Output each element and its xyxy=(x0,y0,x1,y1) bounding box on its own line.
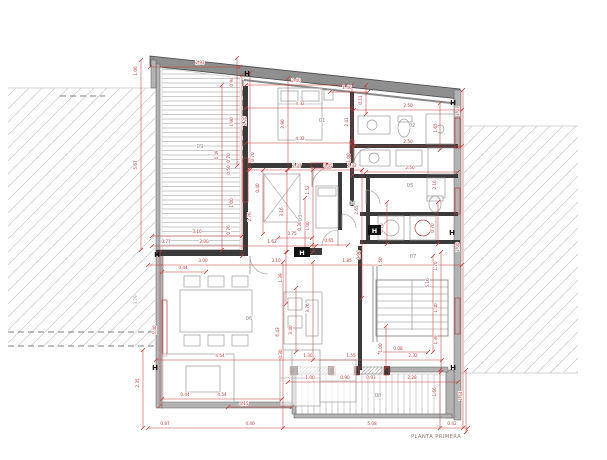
furniture-item xyxy=(208,335,224,346)
wall-glazed xyxy=(446,370,454,418)
dimension-label: 0.76 xyxy=(226,225,231,235)
wall xyxy=(360,212,458,216)
section-marker: H xyxy=(154,251,160,259)
dimension-label: 0.50 xyxy=(226,165,231,175)
wall-glazed xyxy=(156,64,160,252)
dimension-label: 4.54 xyxy=(217,392,227,397)
dimension-label: 5.08 xyxy=(367,421,377,426)
dimension-label: 1.90 xyxy=(229,117,234,127)
dimension-label: 0.70 xyxy=(226,153,231,163)
furniture-item xyxy=(180,290,252,332)
dimension-label: 0.77 xyxy=(161,239,171,244)
dimension-label: 1.00 xyxy=(455,242,460,252)
dimension-label: 2.93 xyxy=(195,60,205,65)
room-label: 03 xyxy=(298,215,304,222)
dimension-label: 2.50 xyxy=(403,139,413,144)
wall xyxy=(360,240,460,244)
wall-glazed xyxy=(151,60,156,88)
dimension-label: 4.15 xyxy=(239,401,249,406)
dimension-label: 2.28 xyxy=(407,375,417,380)
dimension-label: 0.70 xyxy=(250,152,255,162)
dimension-label: 1.39 xyxy=(433,335,438,345)
dimension-label: 3.79 xyxy=(133,295,138,305)
furniture-item xyxy=(324,90,333,100)
dimension-label: 1.55 xyxy=(346,353,356,358)
section-marker-letter: H xyxy=(372,227,377,235)
dimension-label: 1.30 xyxy=(303,353,313,358)
dimension-label: 1.00 xyxy=(346,153,351,163)
dimension-label: 1.00 xyxy=(229,198,234,208)
dimension-label: 3.16 xyxy=(279,207,284,217)
furniture-item xyxy=(208,276,224,287)
section-marker: H xyxy=(244,70,250,78)
dimension-label: 5.67 xyxy=(133,160,138,170)
furniture-item xyxy=(186,366,220,392)
door-arc xyxy=(342,214,356,228)
dimension-label: 4.40 xyxy=(245,421,255,426)
dimension-label: 3.10 xyxy=(192,229,202,234)
dimension-label: 2.37 xyxy=(292,163,302,168)
dimension-label: 2.00 xyxy=(199,239,209,244)
dimension-label: 2.90 xyxy=(280,119,285,129)
dimension-label: 1.70 xyxy=(433,261,438,271)
dimension-label: 0.65 xyxy=(324,238,334,243)
furniture-item xyxy=(232,276,248,287)
section-marker: H xyxy=(450,99,456,107)
dimension-label: 1.40 xyxy=(433,303,438,313)
dimension-label: 0.70 xyxy=(430,223,435,233)
dimension-label: 1.64 xyxy=(458,391,463,401)
dimension-label: 0.90 xyxy=(356,250,361,260)
room-label: 06 xyxy=(246,316,253,322)
dimension-label: 3.40 xyxy=(288,325,293,335)
dimension-label: 3.00 xyxy=(198,258,208,263)
furniture-item xyxy=(358,116,390,134)
room-label: 07 xyxy=(410,254,417,260)
dimension-label: 1.65 xyxy=(433,123,438,133)
dimension-label: 0.44 xyxy=(180,392,190,397)
drawing-title: PLANTA PRIMERA xyxy=(411,434,461,440)
dimension-label: 3.76 xyxy=(305,303,310,313)
dimension-label: 2.16 xyxy=(432,180,437,190)
dimension-label: 3.10 xyxy=(271,258,281,263)
dimension-label: 0.75 xyxy=(287,231,297,236)
furniture-item xyxy=(281,91,298,101)
dimension-label: 2.50 xyxy=(405,165,415,170)
dimension-label: 6.43 xyxy=(275,327,280,337)
dimension-label: 6.49 xyxy=(214,150,219,160)
dimension-label: 4.54 xyxy=(215,353,225,358)
dimension-label: 0.42 xyxy=(447,421,457,426)
site-hatch-left xyxy=(8,88,155,346)
room-label: 01 xyxy=(319,118,326,124)
dimension-label: 1.06 xyxy=(133,66,138,76)
dimension-label: 1.32 xyxy=(347,163,357,168)
dimension-label: 0.90 xyxy=(340,375,350,380)
dimension-label: 1.52 xyxy=(305,185,310,195)
dimension-label: 0.08 xyxy=(393,346,403,351)
wall xyxy=(338,172,342,230)
wall xyxy=(156,250,248,256)
dimension-label: 0.93 xyxy=(366,375,376,380)
dimension-label: 4.32 xyxy=(295,101,305,106)
room-label: 05 xyxy=(407,183,414,189)
wall xyxy=(358,246,362,370)
dimension-label: 0.40 xyxy=(255,183,260,193)
dimension-label: 1.66 xyxy=(432,387,437,397)
furniture-item xyxy=(318,188,336,196)
dimension-label: 2.35 xyxy=(135,378,140,388)
section-marker: H xyxy=(449,229,455,237)
dimension-label: 0.45 xyxy=(323,163,333,168)
furniture-item xyxy=(360,150,390,166)
furniture-item xyxy=(184,335,200,346)
dimension-label: 0.94 xyxy=(229,77,234,87)
dimension-label: 0.30 xyxy=(297,221,302,231)
room-label: 04 xyxy=(349,201,356,207)
site-hatch-right xyxy=(464,126,578,373)
dimension-label: 1.00 xyxy=(305,375,315,380)
room-label: 08 xyxy=(375,393,382,399)
dimension-label: 5.40 xyxy=(152,325,157,335)
dimension-label: 0.44 xyxy=(178,265,188,270)
dimension-label: 2.32 xyxy=(408,353,418,358)
wall-glazed xyxy=(294,414,452,418)
dimension-label: 1.00 xyxy=(305,221,310,231)
room-label: 02 xyxy=(409,123,416,129)
dimension-label: 1.39 xyxy=(278,273,283,283)
dimension-label: 1.62 xyxy=(267,239,277,244)
furniture-item xyxy=(396,150,422,166)
dimension-label: 2.50 xyxy=(403,103,413,108)
section-marker: H xyxy=(450,364,456,372)
floor-plan: 1.062.930.945.676.491.902.202.902.401.46… xyxy=(0,0,607,460)
section-marker: H xyxy=(152,364,158,372)
dimension-label: 0.30 xyxy=(278,349,283,359)
dimension-label: 2.20 xyxy=(242,116,247,126)
dimension-label: 0.87 xyxy=(160,421,170,426)
dimension-label: 1.00 xyxy=(378,343,383,353)
section-marker-letter: H xyxy=(299,249,304,257)
dimension-label: 1.85 xyxy=(342,258,352,263)
dimension-label: 2.76 xyxy=(247,212,252,222)
dimension-label: 1.50 xyxy=(378,257,383,267)
dimension-label: 0.11 xyxy=(358,95,363,105)
dimension-label: 1.01 xyxy=(455,106,460,116)
furniture-item xyxy=(302,91,319,101)
dimension-label: 4.32 xyxy=(295,136,305,141)
furniture-item xyxy=(428,148,454,174)
dimension-label: 1.46 xyxy=(342,85,352,90)
room-label: 09 xyxy=(197,144,204,150)
furniture-item xyxy=(232,335,248,346)
dimension-label: 5.16 xyxy=(425,278,430,288)
furniture-item xyxy=(184,276,200,287)
dimension-label: 2.40 xyxy=(291,78,301,83)
dimension-label: 2.41 xyxy=(344,117,349,127)
furniture-item xyxy=(288,298,302,310)
